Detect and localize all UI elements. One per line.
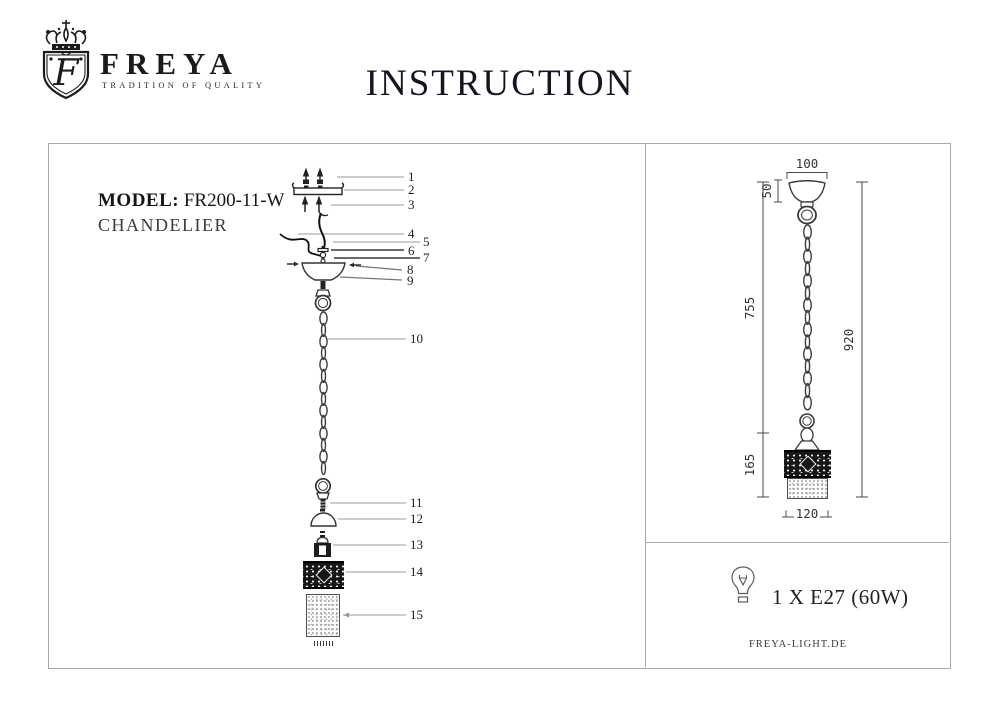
panel-divider-horizontal xyxy=(646,542,949,543)
drawing-ornate-band xyxy=(784,450,831,478)
callout-7: 7 xyxy=(423,250,430,265)
part-ornate-band xyxy=(303,561,344,589)
brand-tagline: TRADITION OF QUALITY xyxy=(102,80,265,90)
website-text: FREYA-LIGHT.DE xyxy=(733,639,863,650)
callout-12: 12 xyxy=(410,511,423,526)
part-stem-hardware xyxy=(318,246,328,259)
part-hanger-ring-bottom xyxy=(316,479,330,499)
part-dome-cap xyxy=(311,509,336,537)
fixture-outline xyxy=(789,181,825,450)
dim-label-920: 920 xyxy=(841,329,856,352)
callout-5: 5 xyxy=(423,234,430,249)
panel-divider-vertical xyxy=(645,143,646,667)
shade-bottom-trim xyxy=(314,641,334,646)
callout-15-arrow xyxy=(343,613,349,618)
freya-crest-icon: F xyxy=(38,16,94,102)
callout-10: 10 xyxy=(410,331,423,346)
part-nipple xyxy=(321,500,326,510)
dim-label-120: 120 xyxy=(796,506,819,521)
part-glass-shade xyxy=(306,594,340,637)
callout-9: 9 xyxy=(407,273,414,288)
dim-canopy-width xyxy=(787,173,827,180)
supply-wire xyxy=(280,234,323,258)
dim-chain-length xyxy=(757,182,769,433)
brand-name: FREYA xyxy=(100,46,239,82)
callout-6: 6 xyxy=(408,243,415,258)
model-label: MODEL: xyxy=(98,190,179,211)
bulb-icon xyxy=(730,566,756,618)
callout-14: 14 xyxy=(410,564,424,579)
dim-label-50: 50 xyxy=(759,183,774,198)
callout-4: 4 xyxy=(408,226,415,241)
callout-13: 13 xyxy=(410,537,423,552)
callout-11: 11 xyxy=(410,495,423,510)
brand-monogram: F xyxy=(53,53,81,94)
part-cord xyxy=(319,213,325,250)
callout-2: 2 xyxy=(408,182,415,197)
part-screws-lower xyxy=(303,197,329,216)
callout-3: 3 xyxy=(408,197,415,212)
dim-shade-height xyxy=(757,433,769,497)
dim-total-height xyxy=(856,182,868,497)
dim-label-755: 755 xyxy=(742,297,757,320)
bulb-spec-text: 1 X E27 (60W) xyxy=(772,585,909,610)
callout-15: 15 xyxy=(410,607,423,622)
part-screws-top xyxy=(304,169,323,184)
part-socket xyxy=(314,538,331,558)
part-hanger-ring-top xyxy=(316,281,331,311)
page-title: INSTRUCTION xyxy=(300,62,700,105)
drawing-glass-shade xyxy=(787,478,828,499)
dim-canopy-height xyxy=(774,180,782,202)
dim-label-100: 100 xyxy=(796,156,819,171)
dim-label-165: 165 xyxy=(742,454,757,477)
part-mounting-bar xyxy=(293,183,344,195)
part-chain xyxy=(320,312,327,475)
callout-numbers: 1 2 3 4 5 6 7 8 9 10 11 12 13 14 15 xyxy=(407,169,430,622)
